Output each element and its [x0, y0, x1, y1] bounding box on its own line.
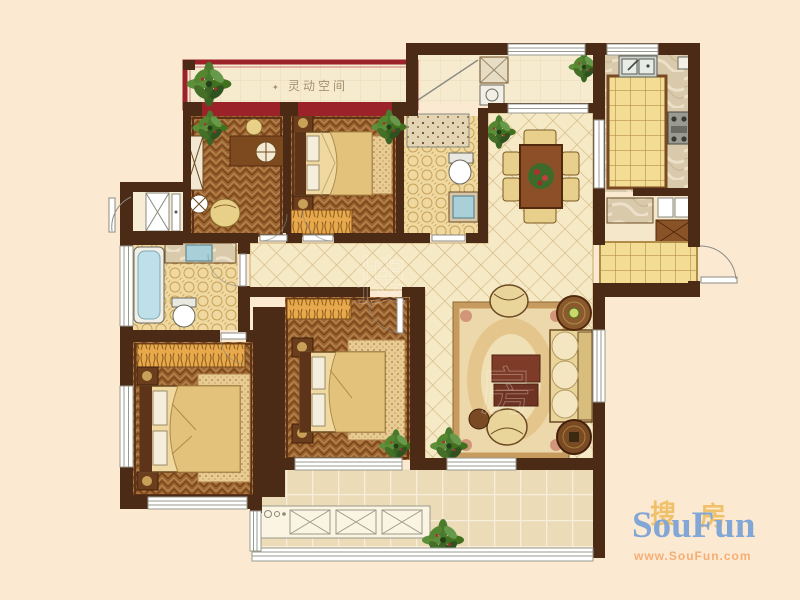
svg-text:房: 房 — [480, 364, 532, 422]
kitchen-sink-icon — [619, 56, 657, 77]
flexible-space-label: ✦ 灵动空间 — [272, 79, 348, 93]
window — [593, 330, 605, 402]
dining-chair — [503, 152, 520, 175]
room-entry — [600, 196, 700, 285]
door-bathroom2 — [432, 235, 465, 241]
balcony-railing — [250, 511, 261, 551]
study-lamp — [246, 119, 262, 135]
window — [295, 458, 402, 470]
room-kitchen — [605, 55, 690, 192]
shower-area — [407, 114, 469, 147]
entry-mat — [600, 242, 697, 284]
room-laundry — [415, 52, 599, 105]
dining-chair — [562, 178, 579, 201]
bedroom3-wardrobe — [287, 299, 351, 319]
bed2 — [295, 132, 372, 195]
sink-icon — [453, 196, 474, 218]
logo-en: SouFun — [632, 504, 755, 547]
soufun-logo: 搜 房 SouFun www.SouFun.com — [630, 492, 770, 568]
sofa-icon — [550, 330, 592, 422]
room-bathroom1 — [133, 243, 238, 330]
shoe-cabinet — [607, 198, 653, 223]
window — [120, 386, 133, 467]
floorplan-image: ✦ 灵动空间 搜 房 搜 房 SouFun www.SouFun.com — [0, 0, 800, 600]
bathtub-icon — [134, 247, 164, 323]
dining-chair — [503, 178, 520, 201]
side-table — [557, 296, 591, 330]
window — [607, 44, 658, 55]
room-balcony-bottom — [258, 468, 593, 561]
room-master-bedroom — [133, 342, 253, 497]
sliding-door — [594, 120, 604, 188]
room-bathroom2 — [404, 114, 478, 235]
bedroom2-wardrobe — [291, 210, 352, 234]
master-bed — [140, 386, 240, 472]
kitchen-island — [608, 76, 666, 188]
planter-boxes — [260, 506, 430, 538]
armchair — [490, 285, 528, 317]
window — [508, 44, 585, 55]
study-pouf — [210, 199, 240, 227]
window — [447, 458, 516, 470]
room-foyer — [133, 192, 183, 233]
toilet-icon — [172, 298, 196, 327]
side-table — [557, 420, 591, 454]
bed3 — [300, 352, 385, 432]
room-bedroom3 — [285, 297, 413, 463]
entry-door — [700, 246, 737, 283]
balcony-railing — [252, 548, 593, 561]
logo-url: www.SouFun.com — [634, 549, 752, 563]
dining-chair — [562, 152, 579, 175]
svg-text:搜: 搜 — [355, 254, 407, 312]
window — [148, 497, 247, 509]
window — [120, 246, 133, 326]
master-wardrobe — [137, 344, 245, 367]
washing-machine-icon — [480, 85, 504, 105]
pass-window — [508, 104, 588, 113]
stove-icon — [668, 112, 690, 144]
